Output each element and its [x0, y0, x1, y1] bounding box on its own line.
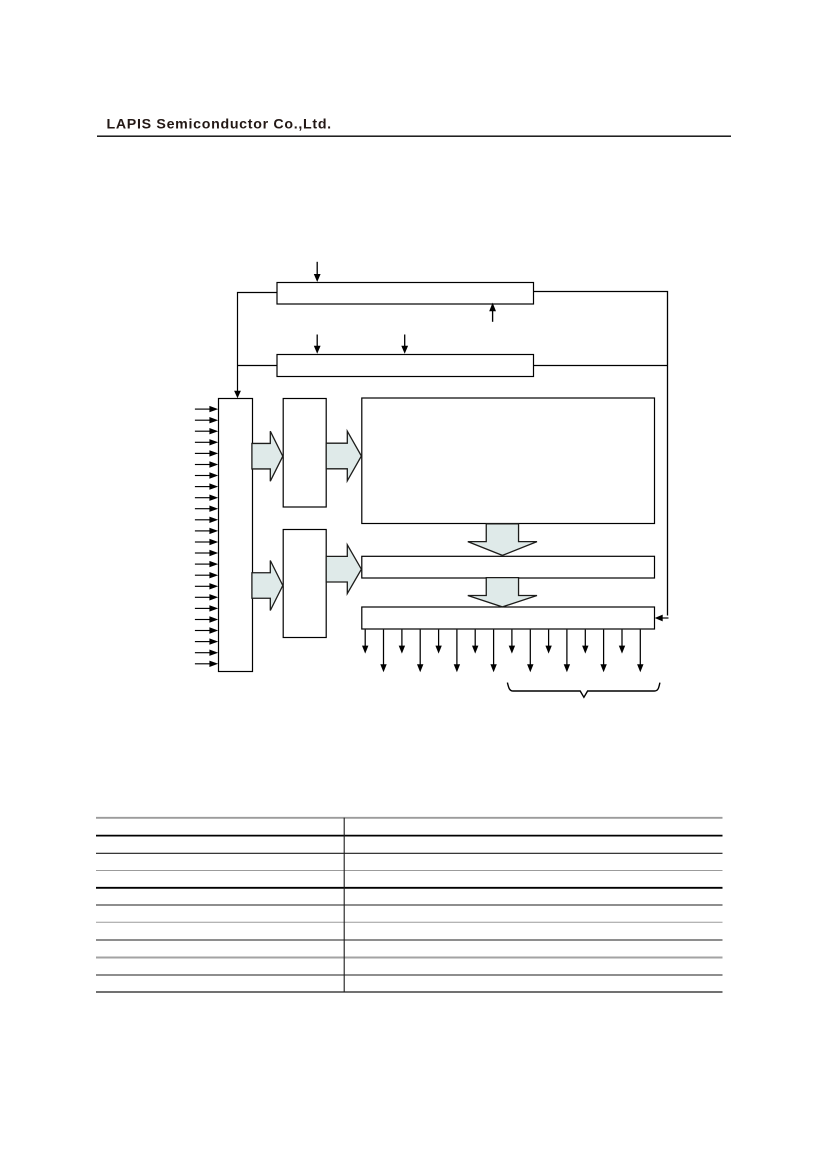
svg-text:LAPIS Semiconductor Co.,Ltd.: LAPIS Semiconductor Co.,Ltd. [107, 117, 332, 133]
